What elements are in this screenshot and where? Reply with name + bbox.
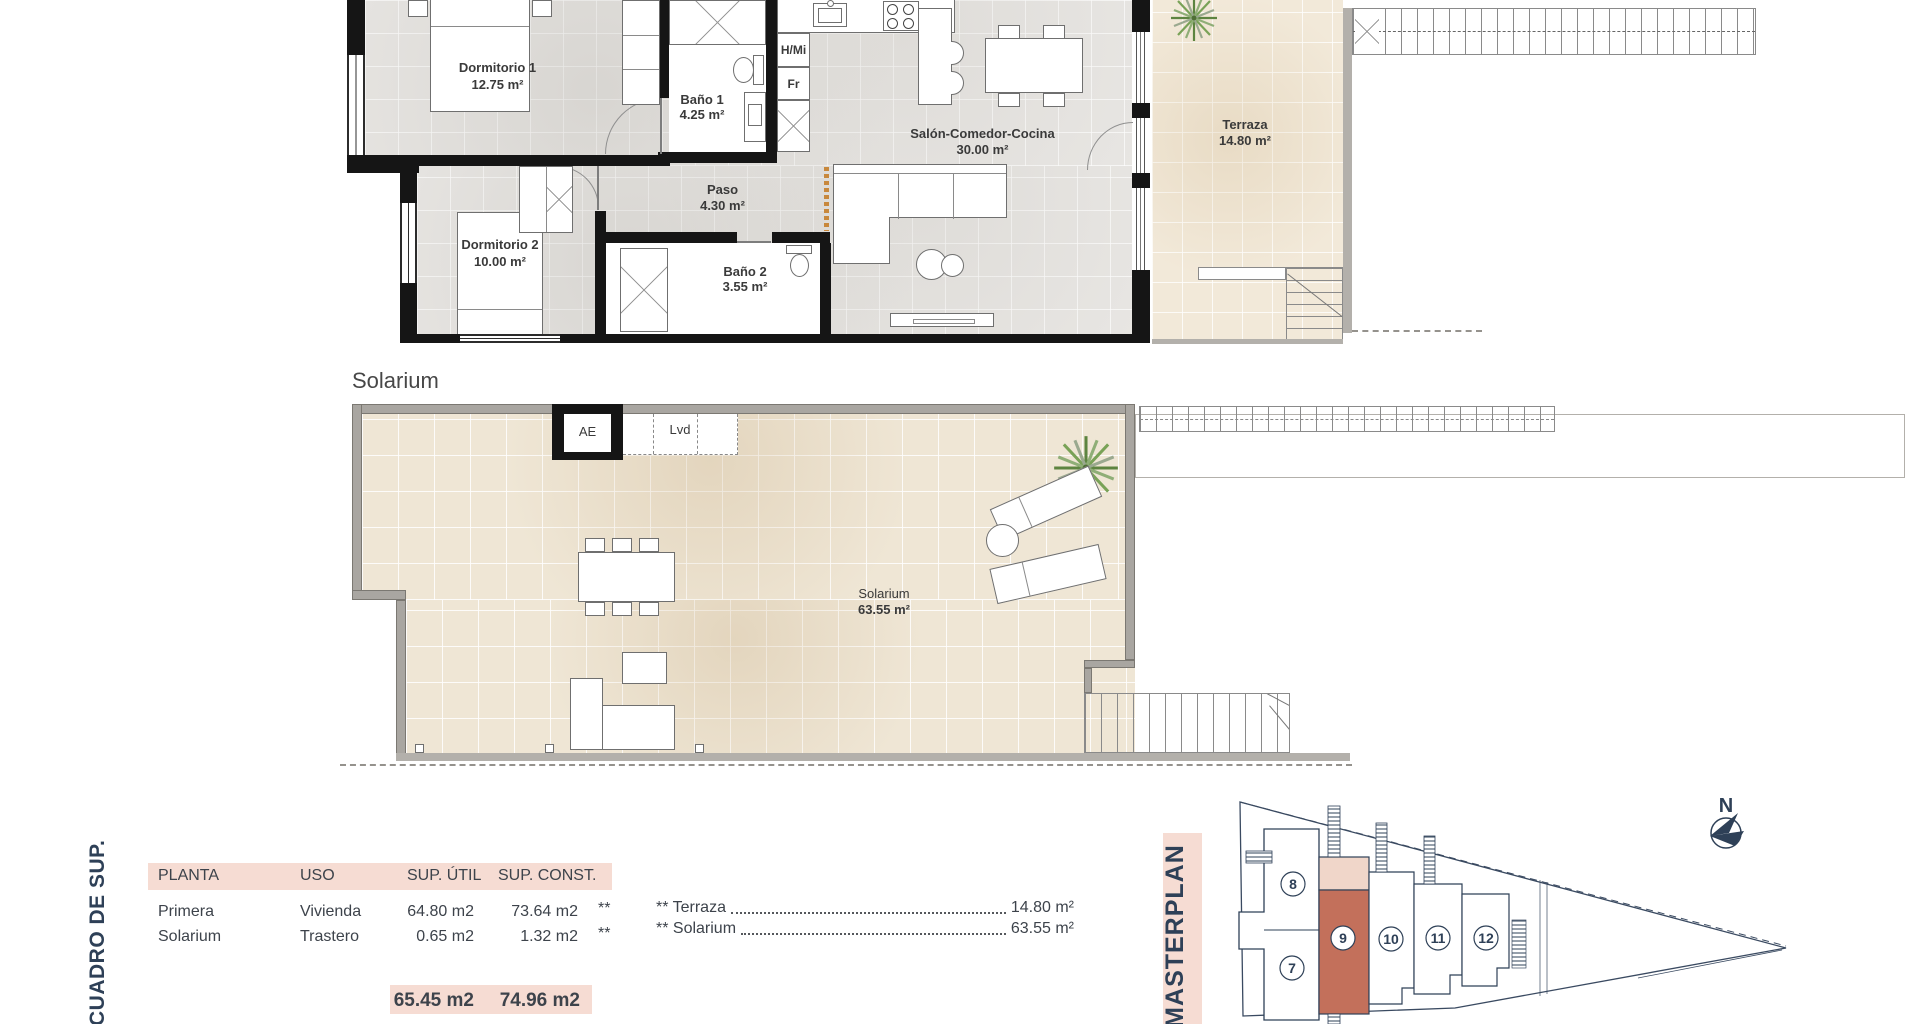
dotted-leader [741, 932, 1006, 935]
dotted-leader [731, 911, 1006, 914]
neighbour-walkway [1139, 406, 1555, 432]
masterplan: MASTERPLAN 8 7 9 10 [1160, 788, 1920, 1024]
north-label: N [1719, 795, 1733, 817]
wall [1132, 270, 1150, 343]
site-hatch [1512, 920, 1526, 968]
room-name: Terraza [1195, 117, 1295, 133]
table-cell: 0.65 m2 [394, 928, 474, 946]
annotation-label: ** Solarium [656, 920, 736, 938]
table-row-mark: ** [598, 925, 610, 943]
table-cell: 73.64 m2 [498, 903, 578, 921]
stairs [1286, 267, 1343, 343]
stair-hatch [1246, 851, 1272, 863]
unit-9-number: 9 [1339, 930, 1347, 946]
unit-9-block-upper [1319, 857, 1369, 890]
wall [1132, 0, 1150, 32]
wall [1125, 404, 1135, 660]
party-wall [1343, 8, 1352, 333]
stairs [1084, 693, 1290, 753]
table-cell: Solarium [158, 928, 221, 946]
annotation-terraza: ** Terraza 14.80 m² [656, 899, 1074, 917]
table-cell: 64.80 m2 [394, 903, 474, 921]
boundary-dash [1352, 330, 1482, 332]
stair-edge [1084, 753, 1350, 761]
table-cell: 1.32 m2 [498, 928, 578, 946]
wall [1132, 173, 1150, 188]
total-const: 74.96 m2 [494, 990, 580, 1012]
glazing [1136, 118, 1145, 173]
table-cell: Trastero [300, 928, 359, 946]
room-area: 14.80 m² [1195, 133, 1295, 149]
annotation-solarium: ** Solarium 63.55 m² [656, 920, 1074, 938]
unit-7-number: 7 [1288, 960, 1296, 976]
terrace-edge [1152, 339, 1343, 344]
annotation-value: 14.80 m² [1011, 899, 1074, 917]
unit-11-number: 11 [1431, 930, 1446, 946]
wall [1132, 103, 1150, 118]
table-cell: Primera [158, 903, 214, 921]
unit-9-block [1319, 890, 1369, 1014]
unit-10-number: 10 [1383, 931, 1399, 947]
surface-table: CUADRO DE SUP. PLANTA USO SUP. ÚTIL SUP.… [0, 0, 1100, 1024]
table-cell: Vivienda [300, 903, 361, 921]
annotation-value: 63.55 m² [1011, 920, 1074, 938]
surface-table-title: CUADRO DE SUP. [86, 840, 110, 1024]
col-header-planta: PLANTA [158, 867, 219, 885]
col-header-const: SUP. CONST. [498, 867, 596, 885]
neighbour-walkway [1352, 8, 1756, 55]
masterplan-title: MASTERPLAN [1161, 844, 1189, 1024]
tree-icon [1168, 0, 1220, 44]
col-header-util: SUP. ÚTIL [407, 867, 481, 885]
table-row-mark: ** [598, 900, 610, 918]
unit-8-number: 8 [1289, 876, 1297, 892]
floorplan-sheet: H/Mi Fr Dormitorio 1 12.75 m² Baño 1 4.2… [0, 0, 1920, 1024]
annotation-label: ** Terraza [656, 899, 726, 917]
stair-hatch [1328, 1014, 1340, 1024]
stair-hatch [1424, 836, 1435, 884]
stair-hatch [1328, 806, 1340, 857]
unit-12-number: 12 [1478, 930, 1494, 946]
glazing [1136, 188, 1145, 270]
stair-hatch [1376, 823, 1387, 872]
total-util: 65.45 m2 [392, 990, 474, 1012]
stair-landing [1198, 267, 1286, 280]
col-header-uso: USO [300, 867, 335, 885]
glazing [1136, 32, 1145, 103]
